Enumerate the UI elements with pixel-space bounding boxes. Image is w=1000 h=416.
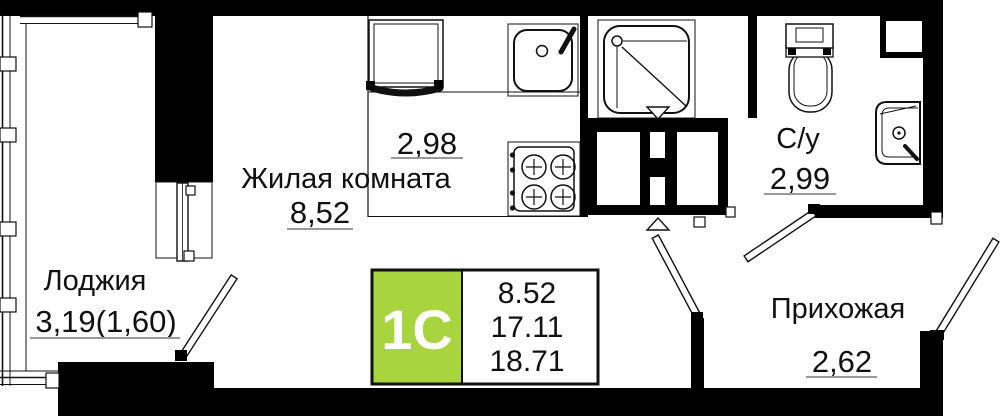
toilet-hinge-cap: [823, 48, 831, 55]
window-mullion: [0, 57, 16, 71]
door-jamb-marker: [694, 217, 705, 227]
window-mullion: [0, 222, 16, 236]
window-latch: [186, 186, 195, 195]
hall-door-marker: [647, 218, 669, 230]
niche-opening: [886, 21, 922, 52]
badge-total-area: 18.71: [489, 345, 564, 378]
knob: [510, 205, 515, 210]
living-room-area: 8,52: [290, 195, 350, 230]
area-underline: [287, 228, 353, 230]
badge-area-without-loggia: 17.11: [491, 311, 564, 344]
area-underline: [391, 157, 463, 159]
living-room-label: Жилая комната: [241, 163, 451, 195]
door-jamb-marker: [726, 207, 735, 217]
shaft-opening-left: [597, 132, 640, 205]
window-mullion: [0, 298, 16, 312]
basin-drain-dot: [897, 131, 900, 134]
toilet-hinge-cap: [788, 48, 796, 55]
wall-kitchen-divider: [580, 14, 588, 217]
door-jamb-marker: [931, 212, 942, 224]
area-underline: [806, 376, 877, 378]
door-hinge: [930, 330, 944, 340]
hallway-label: Прихожая: [771, 293, 905, 325]
hallway-area: 2,62: [812, 344, 872, 379]
wall-loggia-living: [155, 14, 213, 182]
wall-shower-bath-divider: [748, 14, 757, 118]
window-end-cap: [138, 12, 152, 27]
fridge-hinge: [366, 81, 375, 90]
floorplan-drawing: Жилая комната 8,52 2,98 Лоджия 3,19(1,60…: [0, 0, 1000, 416]
loggia-label: Лоджия: [44, 265, 147, 297]
fridge-body: [369, 20, 443, 87]
stove-icon: [508, 142, 580, 216]
fridge-hinge: [434, 80, 443, 89]
entrance-door-leaf: [936, 238, 999, 335]
wall-bathroom-bottom: [815, 205, 943, 218]
door-hinge: [808, 204, 820, 214]
balcony-door-leaf: [181, 275, 237, 356]
shaft-opening-middle-top: [650, 132, 665, 158]
window-end-cap: [46, 373, 59, 388]
toilet-icon: [786, 24, 833, 112]
unit-badge: 1С 8.52 17.11 18.71: [372, 270, 598, 384]
wall-right-upper: [923, 14, 943, 218]
bathroom-area: 2,99: [770, 161, 830, 196]
door-leaf-icon: [181, 275, 237, 356]
badge-living-area: 8.52: [498, 277, 556, 310]
knob: [510, 167, 515, 172]
bathroom-label: С/у: [776, 123, 820, 155]
hall-door-leaf: [652, 235, 701, 319]
bathroom-door-leaf: [744, 210, 816, 262]
sink-bowl: [514, 30, 572, 91]
wall-hall-stub: [691, 318, 704, 390]
door-leaf-icon: [744, 210, 816, 262]
window-latch: [184, 251, 194, 261]
badge-unit-type: 1С: [381, 298, 453, 361]
window-mullion: [0, 128, 16, 142]
knob: [510, 152, 515, 157]
washbasin-icon: [876, 102, 920, 164]
loggia-area: 3,19(1,60): [35, 304, 176, 339]
shaft-opening-middle-bottom: [650, 177, 665, 205]
wall-bottom-left-chunk: [58, 362, 214, 416]
knob: [510, 190, 515, 195]
shower-icon: [598, 20, 695, 119]
area-underline: [764, 193, 836, 195]
kitchen-sink-icon: [508, 24, 578, 96]
area-underline: [30, 337, 180, 339]
door-hinge: [691, 312, 703, 323]
fridge-door-arc: [372, 88, 440, 93]
shaft-opening-right: [677, 132, 718, 205]
door-leaf-icon: [652, 235, 701, 319]
fridge-icon: [366, 20, 443, 93]
kitchen-area: 2,98: [397, 126, 457, 161]
wall-bottom: [213, 388, 943, 416]
floorplan: Жилая комната 8,52 2,98 Лоджия 3,19(1,60…: [0, 0, 1000, 416]
door-hinge: [175, 350, 187, 361]
toilet-bowl: [789, 50, 832, 112]
door-leaf-icon: [936, 238, 999, 335]
